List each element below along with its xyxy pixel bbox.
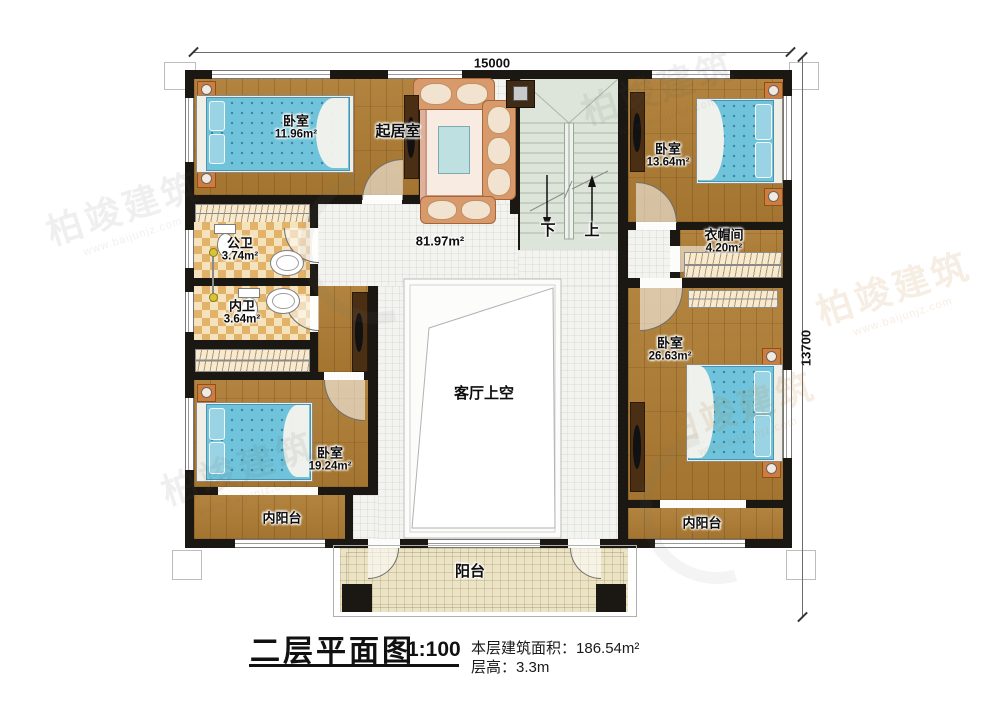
door-opening (636, 222, 676, 230)
window (783, 96, 792, 180)
pillow (209, 442, 225, 474)
decor: 3.74m² (222, 251, 258, 265)
door-opening (640, 278, 682, 288)
eave-corner (789, 62, 819, 90)
window (655, 539, 745, 548)
eave-corner (172, 550, 202, 580)
decor: 13.64m² (647, 157, 690, 171)
title-underline (249, 664, 459, 667)
sofa (420, 196, 496, 224)
window (185, 230, 194, 268)
info-building-area: 本层建筑面积：186.54m² (471, 637, 639, 658)
sink (270, 250, 304, 276)
decor: 卧室 (657, 336, 683, 351)
closet-shaft (506, 80, 535, 108)
decor: 层高： (471, 659, 516, 676)
label-bedroom-top-right: 卧室 13.64m² (647, 142, 690, 171)
decor: 11.96m² (275, 129, 317, 143)
decor: 内阳台 (682, 515, 721, 530)
sink (266, 288, 300, 314)
hall-floor (353, 495, 378, 539)
closet-strip (195, 204, 310, 223)
tv-dresser (630, 92, 645, 172)
pillow (755, 142, 772, 178)
closet-strip (195, 349, 310, 372)
bed-sheet (316, 98, 348, 168)
pillow (755, 104, 772, 140)
decor: 186.54m² (576, 640, 639, 657)
window (185, 398, 194, 470)
decor: 卧室 (655, 142, 681, 157)
decor (420, 83, 452, 105)
decor: 内阳台 (262, 510, 301, 525)
decor: 起居室 (375, 123, 420, 140)
rail-knob (209, 248, 218, 257)
plan-scale: 1:100 (407, 638, 461, 662)
nightstand (762, 460, 781, 478)
passage-opening (218, 487, 318, 495)
corridor-floor (628, 230, 670, 278)
decor: 本层建筑面积： (471, 640, 576, 657)
sofa (482, 100, 516, 200)
dimension-right-value: 13700 (799, 330, 814, 366)
towel-rail (212, 252, 214, 296)
window (652, 70, 730, 79)
label-inner-balcony-left: 内阳台 (262, 510, 301, 525)
label-cloakroom: 衣帽间 4.20m² (704, 228, 743, 257)
pillow (209, 101, 225, 131)
eave-corner (786, 550, 816, 580)
window (783, 370, 792, 458)
pillow (209, 408, 225, 440)
passage-opening (660, 500, 746, 508)
label-stairs-up: 上 (584, 222, 599, 240)
door-opening (670, 246, 680, 272)
pillow (754, 371, 771, 413)
decor: 客厅上空 (454, 385, 514, 402)
label-bedroom-bottom-right: 卧室 26.63m² (649, 336, 692, 365)
decor: 81.97m² (416, 233, 464, 248)
label-void: 客厅上空 (454, 385, 514, 403)
window (212, 70, 330, 79)
label-hall-area: 81.97m² (416, 233, 464, 248)
pillow (209, 134, 225, 164)
label-bedroom-bottom-left: 卧室 19.24m² (309, 446, 352, 475)
decor: 内卫 (229, 299, 255, 314)
decor (487, 137, 511, 165)
label-stairs-down: 下 (540, 222, 555, 240)
door-opening (324, 372, 364, 380)
decor: 3.64m² (224, 314, 260, 328)
desk (352, 292, 368, 372)
rail-knob (209, 293, 218, 302)
label-bedroom-top-left: 卧室 11.96m² (275, 114, 317, 143)
balcony-pillar (596, 584, 626, 612)
decor: www.baijunjz.com (820, 285, 985, 349)
bed-sheet (283, 405, 309, 477)
label-inner-balcony-right: 内阳台 (682, 515, 721, 530)
tv-dresser (630, 402, 645, 492)
decor: 卧室 (317, 446, 343, 461)
dimension-top-value: 15000 (474, 56, 510, 71)
decor: 26.63m² (649, 351, 692, 365)
balcony-pillar (342, 584, 372, 612)
wardrobe-hatch (688, 290, 778, 308)
window (185, 292, 194, 332)
decor (461, 200, 491, 220)
window (185, 98, 194, 162)
label-public-bathroom: 公卫 3.74m² (222, 236, 258, 265)
watermark: 柏竣建筑 www.baijunjz.com (804, 235, 985, 348)
label-inner-bathroom: 内卫 3.64m² (224, 299, 260, 328)
decor (427, 200, 457, 220)
decor: 下 (540, 222, 555, 239)
decor: 柏竣建筑 (804, 235, 982, 337)
void-over-living (403, 278, 562, 539)
decor: 19.24m² (309, 461, 352, 475)
dimension-line-top (193, 52, 791, 53)
decor: 3.3m (516, 659, 549, 676)
coffee-table (438, 126, 470, 174)
nightstand (197, 384, 216, 402)
nightstand (764, 188, 783, 206)
decor: 阳台 (455, 563, 485, 580)
info-floor-height: 层高：3.3m (471, 656, 549, 677)
decor (487, 106, 511, 134)
floor-plan-canvas: 卧室 11.96m² 起居室 卧室 13.64m² 公卫 3.74m² 内卫 3… (0, 0, 1000, 706)
decor: 公卫 (227, 236, 253, 251)
label-balcony: 阳台 (455, 563, 485, 581)
decor: 衣帽间 (704, 228, 743, 243)
label-living-room: 起居室 (375, 123, 420, 141)
decor (487, 168, 511, 196)
window (235, 539, 325, 548)
decor: 卧室 (283, 114, 309, 129)
decor: 4.20m² (704, 243, 743, 257)
decor: 上 (584, 222, 599, 239)
pillow (754, 415, 771, 457)
